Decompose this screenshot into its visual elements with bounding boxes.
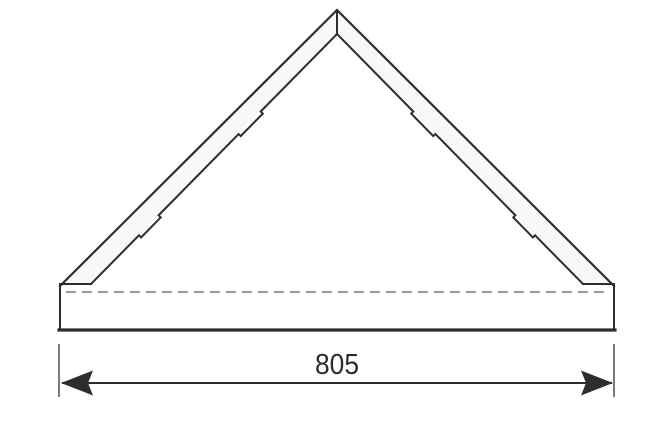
drawing-canvas: 805 xyxy=(0,0,669,422)
triangle-strip-fill xyxy=(60,10,614,286)
panel-outer-edges xyxy=(60,10,614,286)
dimension-label: 805 xyxy=(315,349,359,381)
technical-drawing: 805 xyxy=(0,0,669,422)
panel-inner-edge-right xyxy=(337,34,583,284)
panel-inner-edge-left xyxy=(91,34,337,284)
